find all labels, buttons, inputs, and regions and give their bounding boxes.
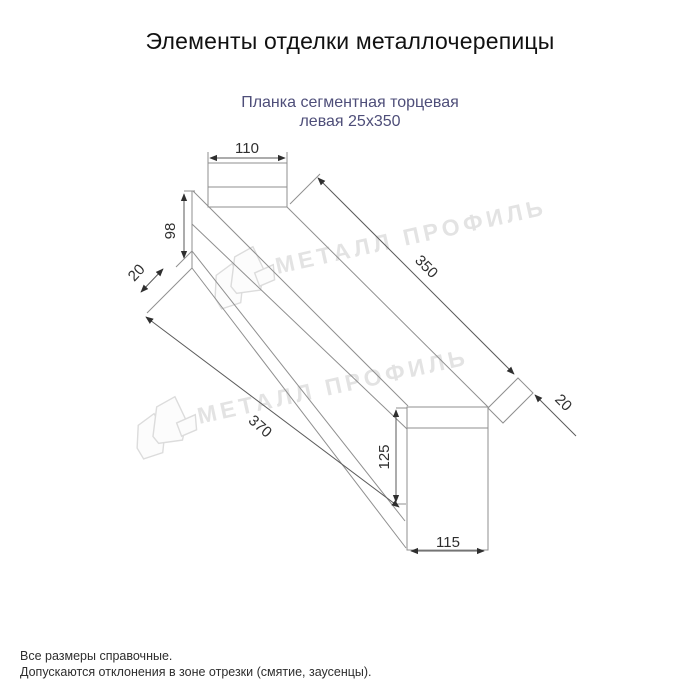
- dim-right-end-height: 125: [376, 444, 393, 469]
- right-end-flap: [488, 378, 533, 423]
- metall-profil-house-logo: [128, 393, 202, 460]
- footer-note-1: Все размеры справочные.: [20, 648, 680, 664]
- dim-right-end-width: 115: [436, 534, 460, 551]
- dim-top-edge-length: 350: [411, 252, 441, 282]
- watermark-lower: МЕТАЛЛ ПРОФИЛЬ: [128, 333, 475, 460]
- dim-left-hem: 20: [125, 261, 149, 285]
- technical-drawing: МЕТАЛЛ ПРОФИЛЬ МЕТАЛЛ ПРОФИЛЬ: [0, 0, 700, 700]
- dim-left-end-height: 98: [162, 223, 179, 240]
- dim-right-flap: 20: [551, 391, 575, 415]
- footer-note-2: Допускаются отклонения в зоне отрезки (с…: [20, 664, 680, 680]
- footer-notes: Все размеры справочные. Допускаются откл…: [20, 648, 680, 680]
- watermark-upper: МЕТАЛЛ ПРОФИЛЬ: [206, 183, 553, 310]
- watermark-text: МЕТАЛЛ ПРОФИЛЬ: [273, 194, 549, 279]
- metall-profil-house-logo: [206, 243, 280, 310]
- watermark-text: МЕТАЛЛ ПРОФИЛЬ: [195, 344, 471, 429]
- product-drawing-page: { "window": { "background_color": "#ffff…: [0, 0, 700, 700]
- left-end-cap: [208, 163, 287, 207]
- dim-end-cap-width: 110: [235, 140, 259, 157]
